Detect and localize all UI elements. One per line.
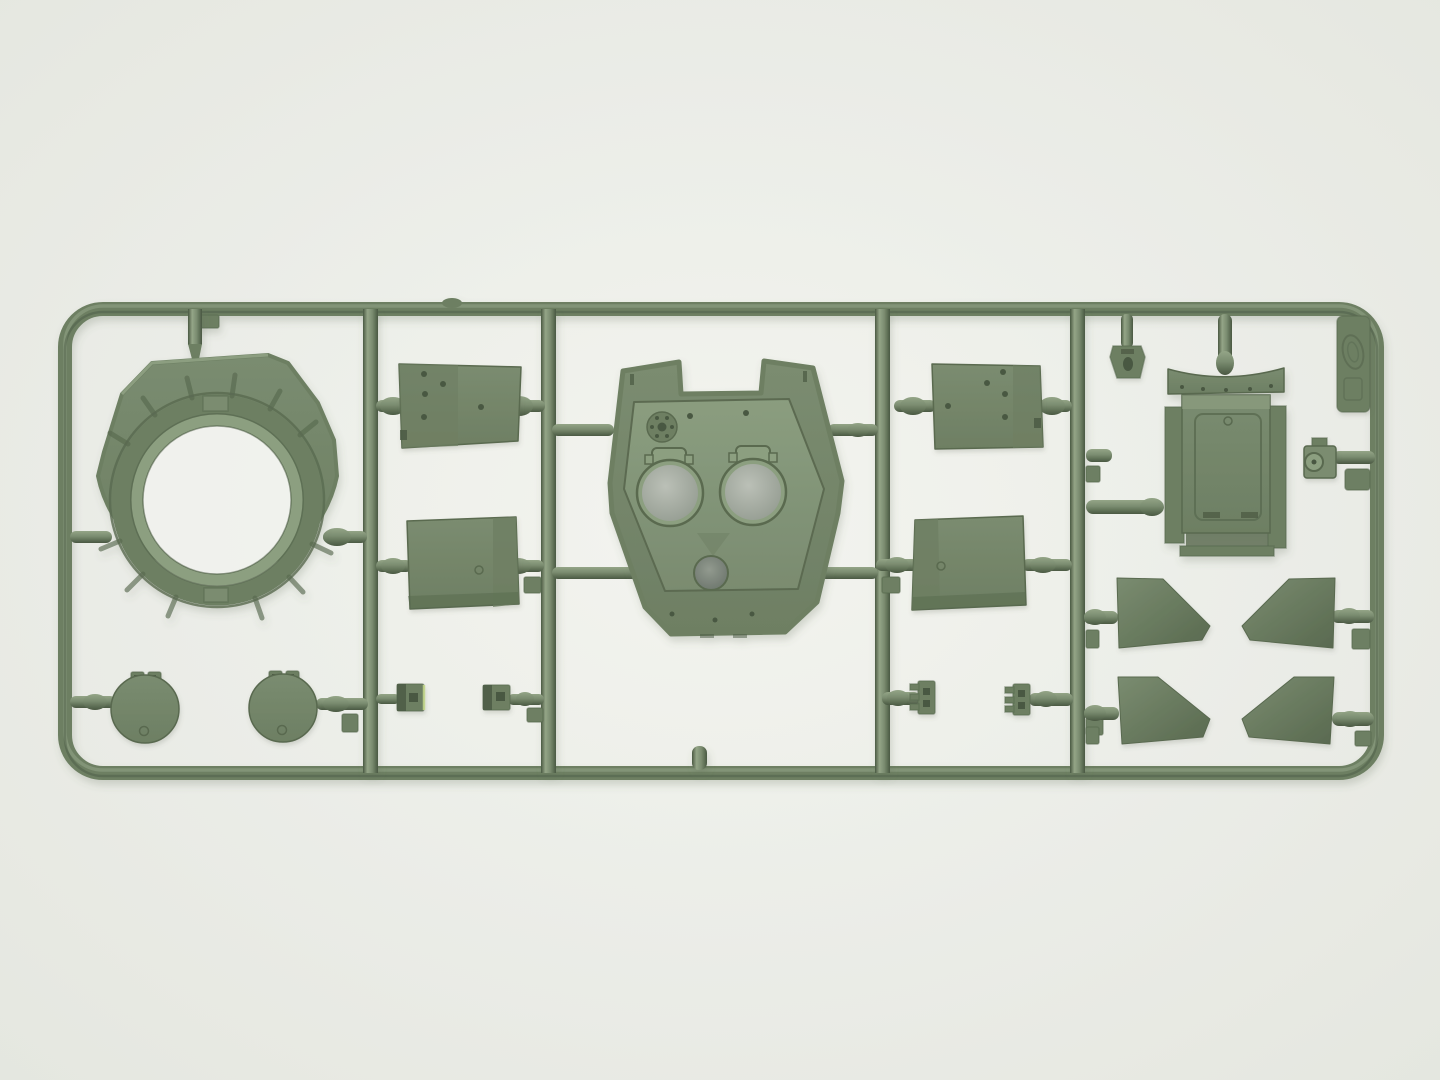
sprue-photo-canvas <box>0 0 1440 1080</box>
photo-of-sprue <box>0 0 1440 1080</box>
vignette <box>0 0 1440 1080</box>
